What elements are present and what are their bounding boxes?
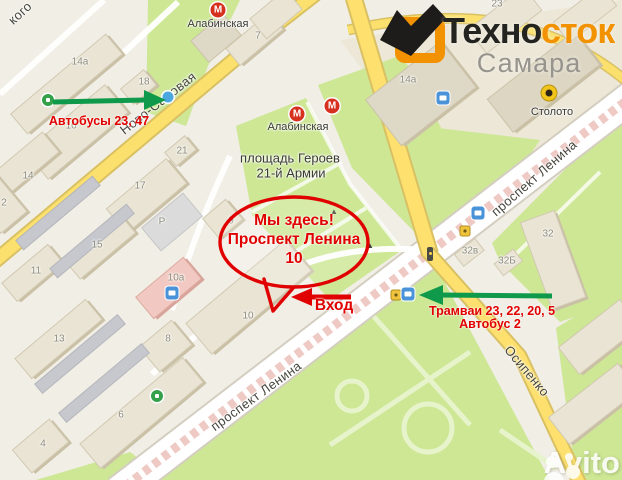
bus-routes-label: Автобусы 23, 47 xyxy=(49,114,149,128)
bus-yellow-icon xyxy=(460,226,471,237)
bus-blue-icon xyxy=(472,207,485,220)
bubble-text-line3: 10 xyxy=(285,250,302,268)
metro-icon: М xyxy=(290,107,305,122)
bubble-text-line2: Проспект Ленина xyxy=(228,231,361,249)
bus-route-2-label: Автобус 2 xyxy=(459,317,521,331)
entrance-label: Вход xyxy=(315,297,353,315)
cinema-icon xyxy=(437,92,450,105)
bus-yellow-icon xyxy=(391,290,402,301)
tram-stop-icon xyxy=(402,288,415,301)
traffic-light-icon xyxy=(427,247,433,261)
map-screenshot: Ново-Садоваяпроспект Ленинапроспект Лени… xyxy=(0,0,622,480)
bubble-text-line1: Мы здесь! xyxy=(254,212,334,230)
monument-icon: ▲ xyxy=(366,242,374,250)
metro-icon: М xyxy=(325,99,340,114)
bank-icon xyxy=(151,390,163,402)
shop-icon xyxy=(166,287,179,300)
bank-icon xyxy=(42,94,54,106)
tram-routes-label: Трамваи 23, 22, 20, 5 xyxy=(429,304,555,318)
lottery-icon xyxy=(541,85,558,102)
clinic-icon xyxy=(163,92,174,103)
metro-icon: М xyxy=(211,3,226,18)
